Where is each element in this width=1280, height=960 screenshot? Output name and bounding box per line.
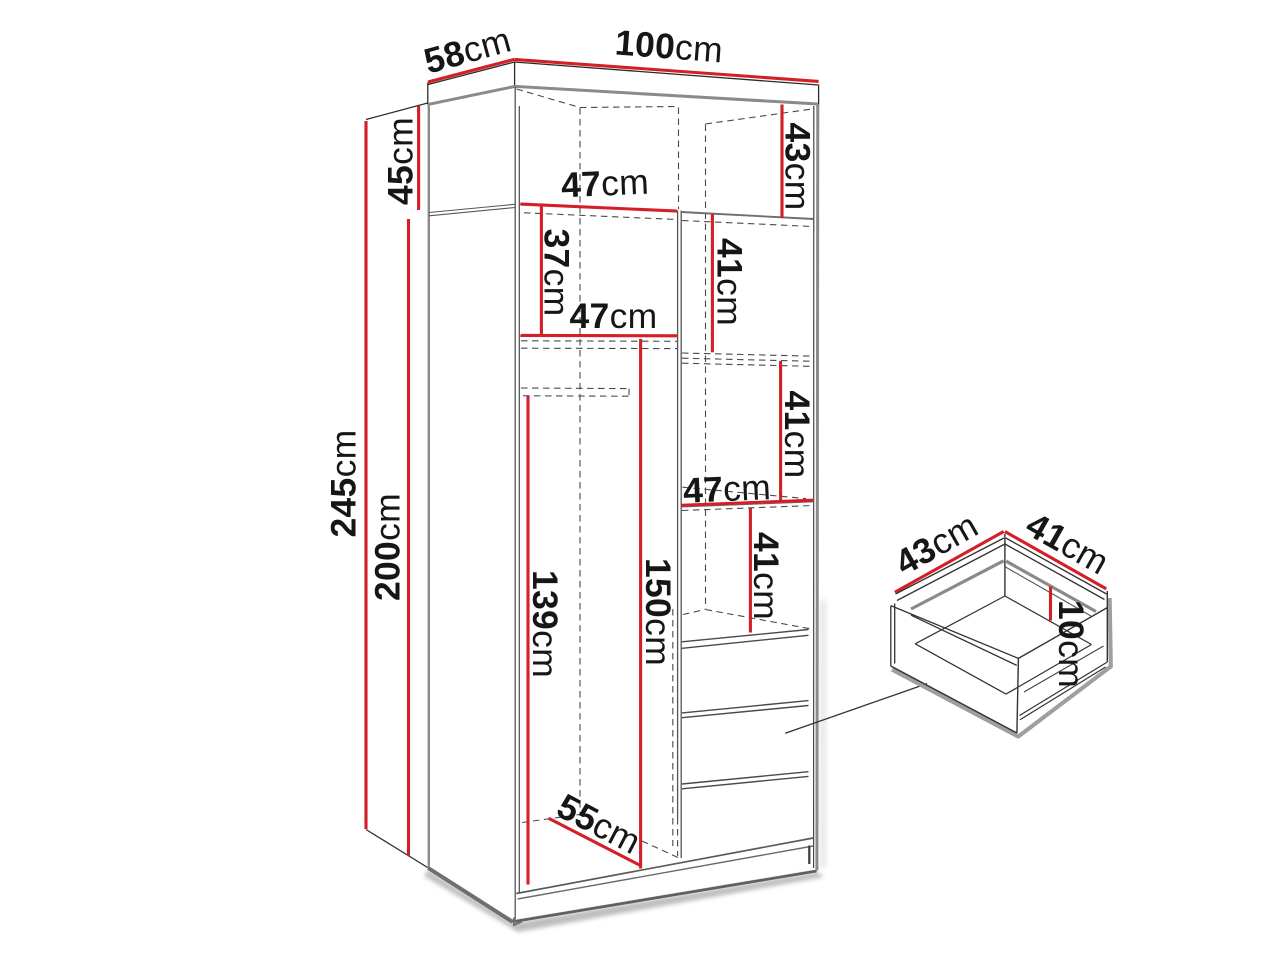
svg-text:139cm: 139cm bbox=[525, 570, 565, 678]
svg-text:41cm: 41cm bbox=[777, 390, 817, 478]
svg-text:10cm: 10cm bbox=[1051, 600, 1091, 688]
svg-text:41cm: 41cm bbox=[746, 532, 786, 620]
svg-text:41cm: 41cm bbox=[1019, 504, 1115, 582]
svg-text:100cm: 100cm bbox=[614, 23, 725, 71]
svg-text:43cm: 43cm bbox=[778, 122, 818, 210]
svg-text:245cm: 245cm bbox=[324, 429, 364, 537]
svg-text:55cm: 55cm bbox=[551, 786, 648, 862]
svg-text:47cm: 47cm bbox=[569, 296, 657, 336]
svg-text:43cm: 43cm bbox=[888, 505, 984, 583]
svg-text:41cm: 41cm bbox=[710, 238, 750, 326]
svg-text:45cm: 45cm bbox=[381, 117, 421, 205]
svg-text:47cm: 47cm bbox=[682, 467, 772, 511]
svg-text:47cm: 47cm bbox=[560, 162, 650, 206]
svg-text:150cm: 150cm bbox=[638, 558, 678, 666]
svg-text:200cm: 200cm bbox=[368, 493, 408, 601]
